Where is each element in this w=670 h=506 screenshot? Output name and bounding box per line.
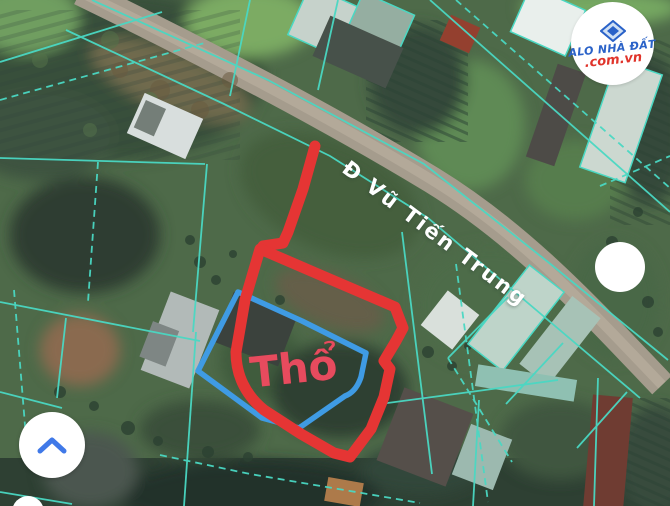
watermark-logo-badge: ALO NHÀ ĐẤT .com.vn: [571, 2, 654, 85]
collapse-button[interactable]: [19, 412, 85, 478]
circle-marker[interactable]: [595, 242, 645, 292]
satellite-map-canvas[interactable]: Đ Vũ Tiến Trung Thổ ALO NHÀ ĐẤT .com.vn: [0, 0, 670, 506]
watermark-text: ALO NHÀ ĐẤT .com.vn: [568, 38, 658, 71]
chevron-up-icon: [37, 437, 67, 454]
satellite-scene: [0, 0, 670, 506]
diamond-logo-icon: [600, 20, 626, 42]
plot-label: Thổ: [248, 344, 339, 395]
